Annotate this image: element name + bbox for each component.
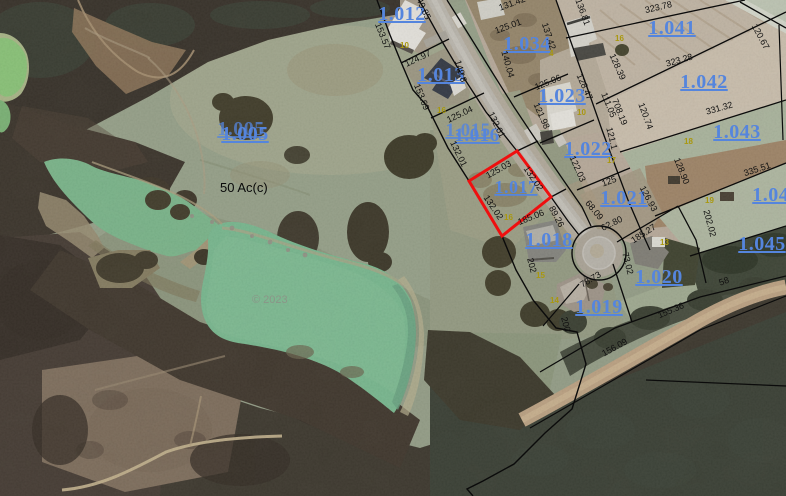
svg-text:13: 13 bbox=[660, 238, 669, 247]
svg-text:14: 14 bbox=[550, 296, 559, 305]
svg-text:© 2023: © 2023 bbox=[252, 294, 288, 306]
svg-text:1.042: 1.042 bbox=[680, 71, 728, 93]
svg-text:17: 17 bbox=[607, 156, 616, 165]
svg-text:16: 16 bbox=[504, 213, 513, 222]
svg-text:1.041: 1.041 bbox=[648, 17, 696, 39]
svg-text:1.044: 1.044 bbox=[752, 184, 786, 206]
svg-text:1.019: 1.019 bbox=[575, 296, 623, 318]
svg-text:18: 18 bbox=[684, 137, 693, 146]
svg-text:16: 16 bbox=[615, 34, 624, 43]
svg-text:10: 10 bbox=[577, 108, 586, 117]
svg-text:4: 4 bbox=[549, 49, 554, 58]
svg-text:16: 16 bbox=[437, 106, 446, 115]
svg-text:19: 19 bbox=[705, 196, 714, 205]
svg-text:50 Ac(c): 50 Ac(c) bbox=[220, 180, 268, 195]
svg-text:1.005: 1.005 bbox=[221, 123, 269, 145]
svg-text:1.020: 1.020 bbox=[635, 266, 683, 288]
svg-text:1.043: 1.043 bbox=[713, 121, 761, 143]
svg-text:15: 15 bbox=[536, 271, 545, 280]
svg-text:1.045: 1.045 bbox=[738, 233, 786, 255]
svg-text:1.018: 1.018 bbox=[525, 229, 573, 251]
svg-text:10: 10 bbox=[400, 41, 409, 50]
